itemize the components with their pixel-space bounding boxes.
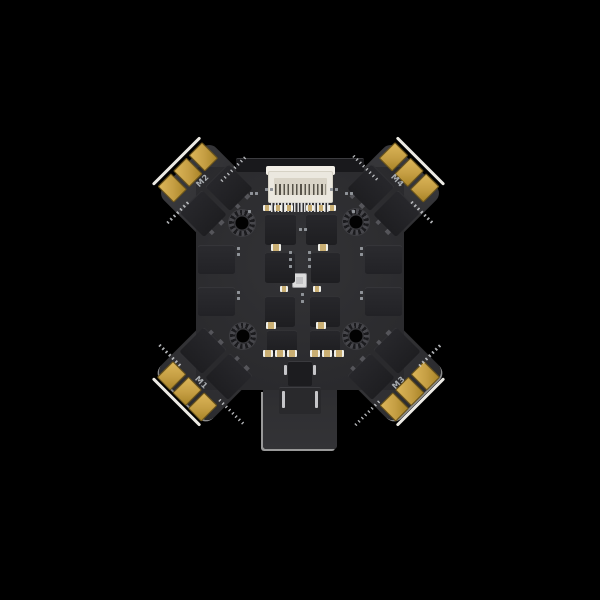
smd-resistor bbox=[310, 350, 320, 357]
smd-resistor bbox=[328, 205, 336, 211]
solder-dot bbox=[270, 188, 273, 191]
smd-resistor bbox=[306, 205, 314, 211]
smd-resistor bbox=[263, 350, 273, 357]
solder-dot bbox=[301, 293, 304, 296]
silkscreen-ticks bbox=[218, 398, 246, 426]
solder-dot bbox=[345, 192, 348, 195]
solder-dot bbox=[360, 253, 363, 256]
silkscreen-ticks bbox=[354, 398, 382, 426]
mounting-hole bbox=[230, 323, 256, 349]
solder-dot bbox=[360, 291, 363, 294]
smd-resistor bbox=[334, 350, 344, 357]
solder-dot bbox=[299, 228, 302, 231]
solder-dot bbox=[301, 300, 304, 303]
solder-dot bbox=[265, 188, 268, 191]
mosfet-chip bbox=[265, 214, 296, 245]
solder-fillet bbox=[315, 391, 318, 408]
solder-dot bbox=[289, 251, 292, 254]
smd-resistor bbox=[322, 350, 332, 357]
solder-dot bbox=[237, 291, 240, 294]
smd-resistor bbox=[313, 286, 321, 292]
solder-dot bbox=[352, 210, 355, 213]
smd-resistor bbox=[318, 244, 328, 251]
solder-dot bbox=[308, 251, 311, 254]
smd-resistor bbox=[285, 205, 293, 211]
solder-dot bbox=[255, 192, 258, 195]
mounting-hole bbox=[343, 209, 369, 235]
solder-dot bbox=[360, 247, 363, 250]
smd-resistor bbox=[266, 322, 276, 329]
solder-dot bbox=[335, 188, 338, 191]
solder-dot bbox=[237, 253, 240, 256]
smd-resistor bbox=[287, 350, 297, 357]
solder-dot bbox=[250, 192, 253, 195]
solder-fillet bbox=[284, 365, 287, 375]
mosfet-chip bbox=[365, 287, 402, 316]
smd-resistor bbox=[316, 322, 326, 329]
solder-dot bbox=[308, 258, 311, 261]
smd-resistor bbox=[274, 205, 282, 211]
mosfet-chip bbox=[365, 245, 402, 274]
mosfet-chip bbox=[198, 245, 235, 274]
smd-resistor bbox=[275, 350, 285, 357]
solder-dot bbox=[289, 258, 292, 261]
smd-resistor bbox=[263, 205, 271, 211]
solder-dot bbox=[330, 188, 333, 191]
smd-resistor bbox=[317, 205, 325, 211]
product-photo-stage: M2 M4 M1 M3 bbox=[0, 0, 600, 600]
solder-dot bbox=[248, 210, 251, 213]
mosfet-chip bbox=[311, 252, 340, 283]
mounting-hole bbox=[229, 210, 255, 236]
solder-fillet bbox=[313, 365, 316, 375]
solder-dot bbox=[360, 297, 363, 300]
solder-dot bbox=[237, 247, 240, 250]
solder-dot bbox=[289, 265, 292, 268]
smd-resistor bbox=[271, 244, 281, 251]
bottom-capacitor bbox=[288, 361, 312, 386]
solder-fillet bbox=[282, 391, 285, 408]
mosfet-chip bbox=[306, 214, 337, 245]
solder-dot bbox=[308, 265, 311, 268]
solder-dot bbox=[350, 192, 353, 195]
solder-dot bbox=[304, 228, 307, 231]
solder-dot bbox=[237, 297, 240, 300]
mounting-hole bbox=[343, 323, 369, 349]
ffc-connector-contacts bbox=[275, 184, 326, 195]
mosfet-chip bbox=[198, 287, 235, 316]
smd-resistor bbox=[280, 286, 288, 292]
